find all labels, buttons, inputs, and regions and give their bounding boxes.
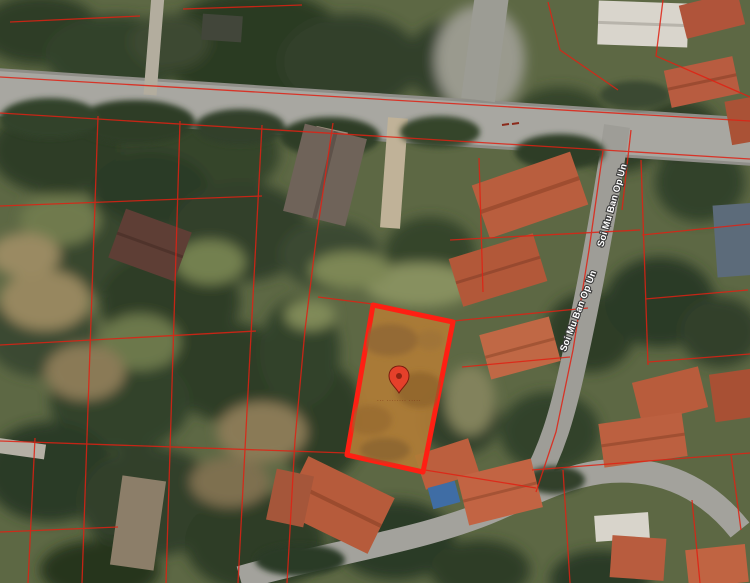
parcel-caption: ··· ········ ····· xyxy=(377,398,421,404)
map-canvas[interactable]: ··· ········ ····· Soi Mu Ban Op Un Soi … xyxy=(0,0,750,583)
satellite-map[interactable]: ··· ········ ····· Soi Mu Ban Op Un Soi … xyxy=(0,0,750,583)
